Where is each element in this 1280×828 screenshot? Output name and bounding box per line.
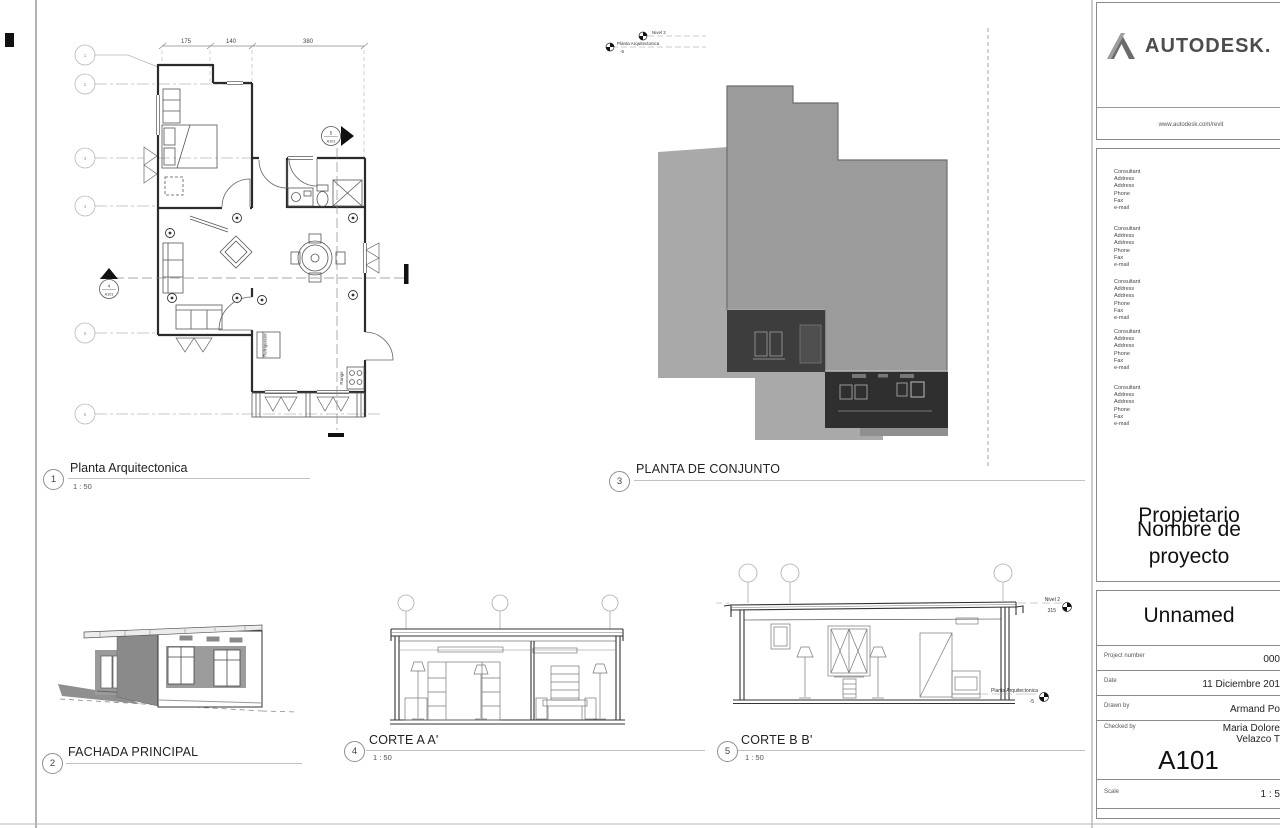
dresser bbox=[163, 89, 180, 123]
svg-text:Planta Arquitectonica: Planta Arquitectonica bbox=[991, 688, 1038, 694]
house-dark-block-left bbox=[727, 310, 825, 372]
autodesk-logo-text: AUTODESK. bbox=[1145, 35, 1271, 58]
field-label: Scale bbox=[1104, 789, 1119, 795]
svg-text:380: 380 bbox=[303, 39, 314, 45]
plan-grid-bubbles bbox=[75, 45, 380, 424]
field-label: Project number bbox=[1104, 653, 1145, 659]
corte-b-structure bbox=[724, 602, 1023, 704]
view-number-badge: 2 bbox=[42, 753, 63, 774]
row-scale: Scale 1 : 5 bbox=[1096, 780, 1280, 809]
client-name: Unnamed bbox=[1097, 604, 1280, 628]
bed bbox=[162, 125, 217, 168]
plan-grid-numbers: 1 2 3 4 5 6 bbox=[84, 53, 87, 417]
bathroom-fixtures bbox=[288, 180, 362, 207]
svg-text:1: 1 bbox=[84, 53, 87, 58]
svg-text:Nivel 2: Nivel 2 bbox=[652, 30, 666, 35]
view-number-badge: 4 bbox=[344, 741, 365, 762]
autodesk-url: www.autodesk.com/revit bbox=[1097, 122, 1280, 128]
kitchen-labels: Refrigerator Range bbox=[263, 333, 345, 385]
corte-a-structure bbox=[390, 629, 625, 724]
view-title: PLANTA DE CONJUNTO bbox=[636, 462, 780, 476]
svg-text:Nivel 2: Nivel 2 bbox=[1045, 597, 1061, 603]
side-wall bbox=[117, 632, 158, 706]
field-value: 11 Diciembre 201 bbox=[1202, 679, 1280, 690]
view-scale: 1 : 50 bbox=[373, 753, 392, 762]
plan-dimension-text: 175 140 380 bbox=[181, 39, 314, 45]
field-value: Armand Po bbox=[1230, 704, 1280, 715]
corte-b-level-markers: Nivel 2 315 Planta Arquitectonica -5 bbox=[716, 597, 1072, 705]
title-underline bbox=[66, 763, 302, 764]
svg-text:-5: -5 bbox=[620, 49, 624, 54]
corte-a bbox=[390, 595, 625, 724]
sofa-vertical bbox=[163, 243, 183, 293]
consultant-block: ConsultantAddress AddressPhone Faxe-mail bbox=[1114, 226, 1140, 269]
section-a-end-tick bbox=[404, 264, 409, 284]
sofa-horizontal bbox=[176, 305, 222, 329]
field-label: Checked by bbox=[1104, 724, 1136, 730]
left-window bbox=[101, 656, 112, 688]
corte-b: Nivel 2 315 Planta Arquitectonica -5 bbox=[716, 564, 1072, 705]
site-level-markers: Nivel 2 Planta Arquitectonica -5 bbox=[606, 30, 706, 54]
svg-text:175: 175 bbox=[181, 39, 192, 45]
section-marker-5: 5 A101 bbox=[322, 126, 355, 146]
living-furniture bbox=[163, 216, 345, 329]
view-number-badge: 3 bbox=[609, 471, 630, 492]
dining-table bbox=[298, 241, 332, 275]
drawing-sheet: 1 2 3 4 5 6 175 140 380 bbox=[0, 0, 1280, 828]
consultant-block: ConsultantAddress AddressPhone Faxe-mail bbox=[1114, 279, 1140, 322]
titleblock-logo-box: AUTODESK. www.autodesk.com/revit bbox=[1096, 2, 1280, 140]
svg-text:140: 140 bbox=[226, 39, 237, 45]
svg-text:6: 6 bbox=[84, 412, 87, 417]
corte-b-grid-bubbles bbox=[739, 564, 1012, 603]
view-scale: 1 : 50 bbox=[73, 482, 92, 491]
bedroom-furniture bbox=[162, 89, 217, 195]
row-drawn-by: Drawn by Armand Po bbox=[1096, 696, 1280, 721]
plan-columns bbox=[166, 214, 358, 305]
field-value: Maria Dolore Velazco T bbox=[1223, 723, 1280, 745]
house-dark-block-bottom bbox=[825, 371, 948, 436]
view-number-badge: 1 bbox=[43, 469, 64, 490]
svg-text:Range: Range bbox=[339, 371, 344, 385]
svg-text:Planta Arquitectonica: Planta Arquitectonica bbox=[617, 41, 660, 46]
svg-text:Refrigerator: Refrigerator bbox=[263, 333, 268, 357]
divider bbox=[1097, 107, 1280, 108]
corte-b-furniture bbox=[771, 624, 980, 698]
svg-text:315: 315 bbox=[1048, 608, 1057, 614]
refrigerator bbox=[257, 332, 280, 358]
view-title: CORTE A A' bbox=[369, 733, 438, 747]
section-end-tick bbox=[5, 33, 14, 47]
closet-dashed bbox=[165, 177, 183, 195]
view-title: Planta Arquitectonica bbox=[70, 461, 187, 475]
field-value: 000 bbox=[1263, 654, 1280, 665]
svg-text:-5: -5 bbox=[1030, 699, 1035, 705]
project-name: Nombre de proyecto bbox=[1114, 516, 1264, 570]
section-b-end-tick bbox=[328, 433, 344, 437]
terrain-left bbox=[658, 147, 728, 378]
fachada-principal bbox=[58, 625, 298, 712]
range bbox=[347, 367, 364, 389]
porch bbox=[252, 393, 365, 417]
title-underline bbox=[68, 478, 310, 479]
section-marker-4: 4 A101 bbox=[100, 268, 119, 299]
consultant-block: ConsultantAddress AddressPhone Faxe-mail bbox=[1114, 329, 1140, 372]
consultant-block: ConsultantAddress AddressPhone Faxe-mail bbox=[1114, 385, 1140, 428]
site-plan: Nivel 2 Planta Arquitectonica -5 bbox=[606, 28, 988, 466]
svg-text:5: 5 bbox=[84, 331, 87, 336]
title-underline bbox=[634, 480, 1085, 481]
row-checked-by: Checked by Maria Dolore Velazco T A101 bbox=[1096, 721, 1280, 780]
title-underline bbox=[366, 750, 705, 751]
field-label: Drawn by bbox=[1104, 703, 1129, 709]
view-title: CORTE B B' bbox=[741, 733, 813, 747]
svg-text:3: 3 bbox=[84, 156, 87, 161]
sheet-number: A101 bbox=[1097, 745, 1280, 776]
view-scale: 1 : 50 bbox=[745, 753, 764, 762]
titleblock-consultant-box: ConsultantAddress AddressPhone Faxe-mail… bbox=[1096, 148, 1280, 582]
plan-walls bbox=[158, 64, 365, 417]
corte-a-furniture bbox=[405, 662, 607, 720]
svg-text:2: 2 bbox=[84, 82, 87, 87]
field-value: 1 : 5 bbox=[1261, 789, 1280, 800]
tv-bench bbox=[190, 216, 228, 229]
view-number-badge: 5 bbox=[717, 741, 738, 762]
sink bbox=[292, 193, 301, 202]
toilet-tank bbox=[317, 185, 328, 191]
svg-text:A101: A101 bbox=[105, 293, 114, 297]
autodesk-logo-icon bbox=[1105, 31, 1139, 61]
view-title: FACHADA PRINCIPAL bbox=[68, 745, 198, 759]
title-underline bbox=[738, 750, 1085, 751]
row-empty bbox=[1096, 809, 1280, 819]
svg-text:A101: A101 bbox=[327, 140, 336, 144]
corte-a-grid-bubbles bbox=[398, 595, 618, 629]
autodesk-logo: AUTODESK. bbox=[1105, 31, 1271, 61]
row-date: Date 11 Diciembre 201 bbox=[1096, 671, 1280, 696]
row-project-number: Project number 000 bbox=[1096, 646, 1280, 671]
field-label: Date bbox=[1104, 678, 1117, 684]
toilet bbox=[317, 192, 328, 207]
consultant-block: ConsultantAddress AddressPhone Faxe-mail bbox=[1114, 169, 1140, 212]
linework-layer: 1 2 3 4 5 6 175 140 380 bbox=[0, 0, 1280, 828]
titleblock-client-box: Unnamed bbox=[1096, 590, 1280, 646]
svg-text:4: 4 bbox=[84, 204, 87, 209]
kitchen-fixtures bbox=[257, 332, 364, 389]
